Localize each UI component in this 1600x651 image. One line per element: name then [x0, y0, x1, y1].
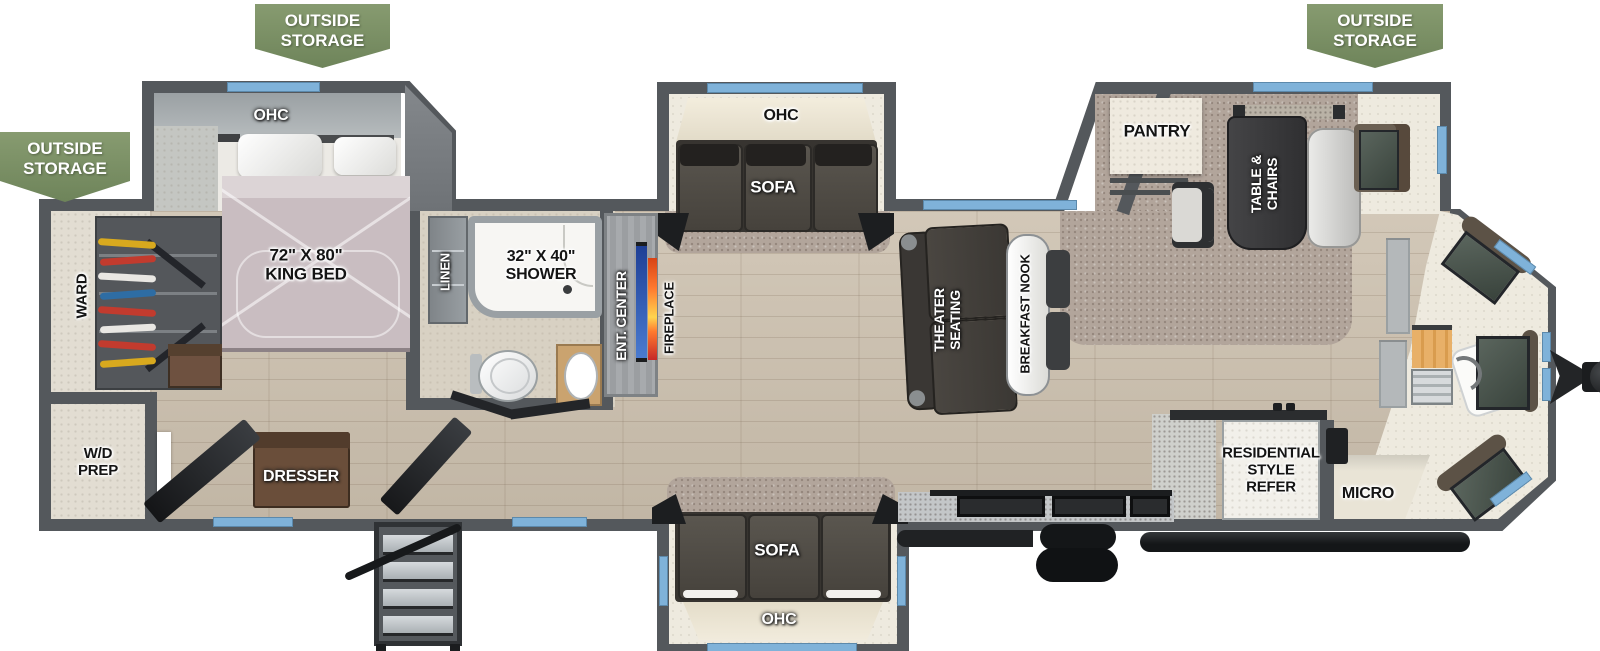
bed-pillow-right — [334, 137, 396, 175]
window-entry-bottom — [512, 517, 587, 527]
label-ward: WARD — [73, 273, 90, 318]
window-dinette-right — [1437, 126, 1447, 174]
label-ohc-sofa-top: OHC — [764, 107, 799, 125]
nook-stool-2 — [1046, 312, 1070, 370]
portable-grill-base — [1036, 548, 1118, 582]
bed-pillow-left — [238, 134, 322, 178]
label-theater-seating: THEATER SEATING — [932, 288, 964, 352]
window-sofa-slide — [707, 83, 863, 93]
label-linen: LINEN — [439, 253, 454, 291]
window-bedroom-slide — [227, 82, 320, 92]
clothes-hangers — [98, 240, 160, 376]
exterior-rail-left — [897, 530, 1033, 547]
fireplace-insert — [648, 258, 657, 360]
bedside-bench — [168, 344, 222, 388]
window-bottom-slide-right — [897, 556, 906, 606]
window-bedroom-bottom — [213, 517, 293, 527]
dinette-chair — [1172, 188, 1214, 242]
bottom-slide-carpet — [667, 477, 895, 517]
step-foot-left — [376, 644, 386, 651]
window-cap-right-2 — [1542, 368, 1551, 401]
outdoor-griddle-1 — [957, 496, 1045, 517]
window-bottom-slide-left — [659, 556, 668, 606]
label-refer: RESIDENTIAL STYLE REFER — [1222, 444, 1320, 495]
step-foot-right — [450, 644, 460, 651]
outdoor-counter-edge — [930, 490, 1172, 496]
label-ohc-bedroom: OHC — [254, 107, 289, 125]
label-fireplace: FIREPLACE — [663, 282, 678, 354]
range-oven — [1326, 428, 1348, 464]
dinette-front-window — [1354, 124, 1410, 192]
banner-text: OUTSIDE STORAGE — [1333, 11, 1417, 68]
banner-text: OUTSIDE STORAGE — [281, 11, 365, 68]
label-breakfast-nook: BREAKFAST NOOK — [1019, 254, 1034, 373]
label-dresser: DRESSER — [263, 468, 339, 486]
cap-cabinet-1 — [1386, 238, 1410, 334]
window-cap-right-1 — [1542, 332, 1551, 362]
outdoor-griddle-2 — [1052, 496, 1126, 517]
cap-window-right — [1474, 330, 1540, 412]
bumper-tube — [1140, 532, 1470, 552]
toilet — [470, 350, 534, 398]
window-dinette-top — [1253, 82, 1373, 92]
dinette-bench — [1307, 128, 1361, 248]
outdoor-sink — [1130, 496, 1170, 517]
bedroom-slide-cabinet — [154, 126, 218, 211]
nook-stool-1 — [1046, 250, 1070, 308]
label-pantry: PANTRY — [1124, 121, 1191, 140]
label-ohc-sofa-bottom: OHC — [762, 611, 797, 629]
label-sofa-bottom: SOFA — [754, 540, 800, 559]
portable-grill — [1040, 524, 1116, 550]
cooktop-knob-2 — [1286, 403, 1295, 411]
label-ent-center: ENT. CENTER — [614, 271, 630, 361]
label-wd-prep: W/D PREP — [78, 445, 118, 479]
label-micro: MICRO — [1342, 485, 1394, 503]
kitchen-counter-edge — [1170, 410, 1327, 420]
label-king-bed: 72" X 80" KING BED — [265, 246, 347, 285]
cooktop-knob-1 — [1273, 403, 1282, 411]
wall-wd-top — [51, 392, 157, 404]
label-table-chairs: TABLE & CHAIRS — [1249, 155, 1281, 213]
bath-vanity — [556, 344, 602, 406]
label-shower: 32" X 40" SHOWER — [506, 248, 577, 284]
window-living-top — [923, 200, 1077, 210]
cap-cabinet-2 — [1379, 340, 1407, 408]
stove-cover-board — [1412, 330, 1452, 368]
rv-floorplan: OUTSIDE STORAGE OUTSIDE STORAGE OUTSIDE … — [0, 0, 1600, 651]
label-sofa-top: SOFA — [750, 177, 796, 196]
window-bottom-slide-bottom — [707, 643, 857, 651]
tv-screen — [636, 246, 647, 358]
